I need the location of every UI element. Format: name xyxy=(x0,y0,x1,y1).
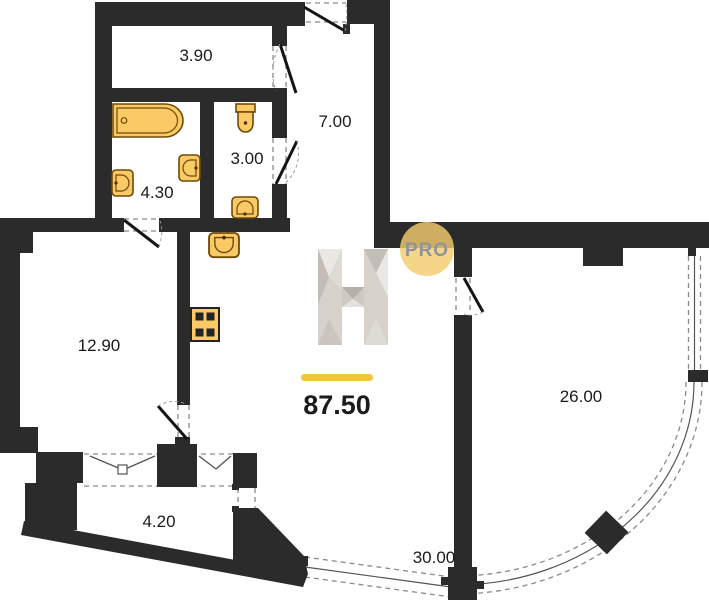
window-sash-right xyxy=(199,456,231,469)
pro-badge: PRO xyxy=(400,222,454,276)
stove-icon xyxy=(191,308,219,341)
floor-plan: PRO xyxy=(0,0,709,600)
wall-pillar-top xyxy=(583,248,623,266)
wall-wardrobe-bottom xyxy=(112,88,287,102)
wall-strip-right-block xyxy=(233,453,257,488)
pro-badge-label: PRO xyxy=(405,240,449,261)
room-label-hallway: 7.00 xyxy=(318,112,351,131)
wall-hallway-left xyxy=(272,92,287,138)
curved-glazing-outer xyxy=(456,382,702,594)
sink-icon xyxy=(112,170,133,196)
glazing-nub xyxy=(688,248,696,256)
entrance-door xyxy=(304,4,347,31)
sink-icon xyxy=(232,197,258,218)
sink-icon xyxy=(179,155,200,181)
wall-top-left xyxy=(95,2,305,26)
watermark-h-logo xyxy=(318,249,388,345)
kitchen-sink-icon xyxy=(209,233,239,257)
room-label-wc: 3.00 xyxy=(230,149,263,168)
pillar-nub xyxy=(477,581,484,589)
wardrobe-door xyxy=(273,44,296,93)
pillar-bottom xyxy=(448,567,477,600)
wall-left-block xyxy=(95,2,112,218)
bathtub-icon xyxy=(113,104,183,137)
curved-glazing-inner xyxy=(456,382,686,576)
glazing-tick xyxy=(299,556,308,566)
room-label-bedroom: 12.90 xyxy=(78,336,121,355)
balcony-door-nub xyxy=(232,484,239,490)
window-sash-left xyxy=(90,456,155,474)
room-label-living-room: 26.00 xyxy=(560,387,603,406)
total-area-underline xyxy=(301,374,373,381)
wall-living26-stub xyxy=(454,248,472,277)
room-label-bathroom: 4.30 xyxy=(140,183,173,202)
toilet-icon xyxy=(236,104,255,132)
wall-bath-wc-divider xyxy=(200,102,214,218)
bottom-glazing-inner xyxy=(305,577,451,597)
wall-living26 xyxy=(454,315,472,570)
wall-hallway-left xyxy=(272,184,287,218)
wall-bedroom-living xyxy=(177,218,190,405)
wall-balcony-left-a xyxy=(36,452,83,483)
living-room-door xyxy=(464,278,483,315)
room-label-balcony: 4.20 xyxy=(142,512,175,531)
wall-hallway-right xyxy=(374,0,390,248)
curved-glazing-mid xyxy=(456,382,694,585)
wall-left-corner-top xyxy=(0,218,33,253)
pillar-nub xyxy=(441,577,448,585)
room-label-wardrobe: 3.90 xyxy=(179,46,212,65)
total-area-label: 87.50 xyxy=(303,390,371,420)
bedroom-door xyxy=(158,401,187,439)
wc-door xyxy=(276,141,298,184)
wall-strip-footing xyxy=(157,444,197,487)
glazing-mullion xyxy=(688,370,708,382)
wall-left-corner-bottom xyxy=(0,427,38,453)
wall-hallway-left xyxy=(272,26,287,46)
wall-left-exterior xyxy=(0,253,20,427)
bathroom-door xyxy=(124,220,162,247)
balcony-door-nub xyxy=(232,506,239,512)
bottom-glazing-mid xyxy=(305,567,451,587)
room-label-terrace: 30.00 xyxy=(413,548,456,567)
